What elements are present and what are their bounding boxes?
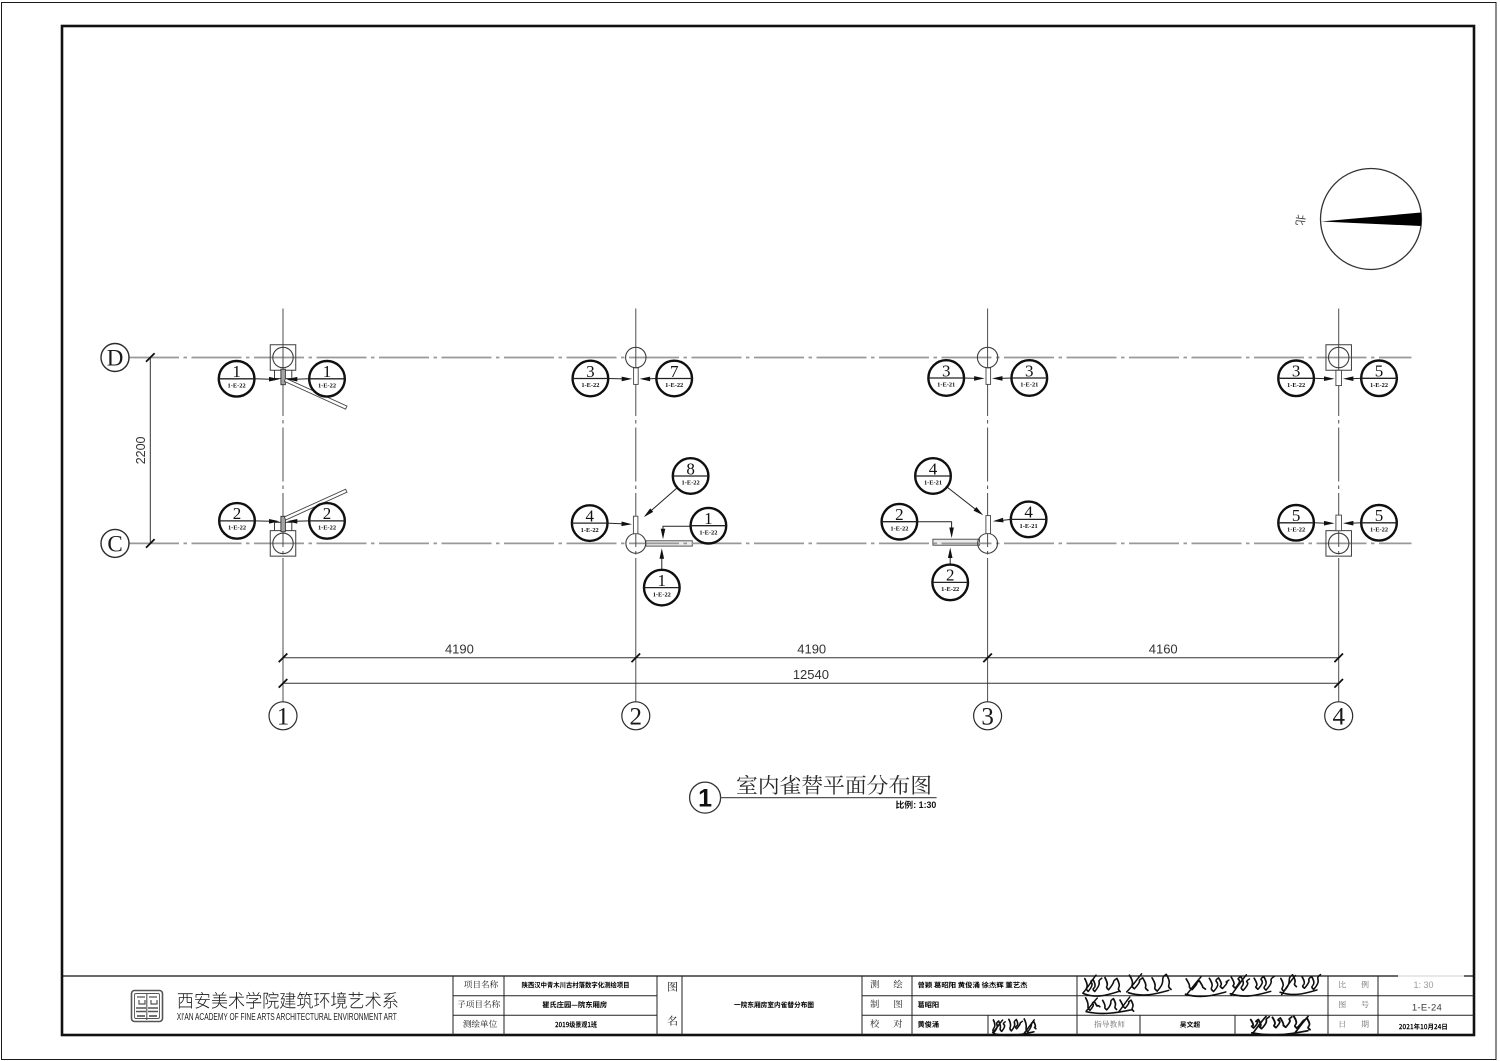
svg-text:1-E-22: 1-E-22 [581, 382, 599, 389]
svg-text:5: 5 [1375, 362, 1384, 381]
svg-text:1: 1 [658, 571, 667, 590]
svg-text:5: 5 [1292, 506, 1301, 525]
svg-text:1-E-22: 1-E-22 [699, 529, 717, 536]
svg-text:1: 1 [277, 703, 290, 730]
svg-text:4: 4 [1024, 503, 1033, 522]
svg-text:C: C [107, 531, 122, 556]
svg-text:1-E-21: 1-E-21 [1020, 382, 1038, 389]
svg-text:1-E-22: 1-E-22 [890, 525, 908, 532]
svg-text:3: 3 [1025, 361, 1034, 380]
svg-text:2: 2 [233, 504, 242, 523]
svg-text:2: 2 [946, 566, 955, 585]
svg-text:1-E-22: 1-E-22 [1287, 382, 1305, 389]
svg-text:12540: 12540 [793, 667, 829, 682]
svg-text:1-E-22: 1-E-22 [665, 382, 683, 389]
svg-text:1: 1 [704, 509, 713, 528]
svg-text:1-E-21: 1-E-21 [1020, 523, 1038, 530]
svg-text:2200: 2200 [134, 436, 148, 464]
svg-text:1-E-24: 1-E-24 [1412, 1002, 1442, 1013]
svg-text:4: 4 [585, 506, 594, 525]
svg-text:7: 7 [670, 362, 679, 381]
svg-text:2: 2 [895, 505, 904, 524]
svg-text:1-E-22: 1-E-22 [1287, 527, 1305, 534]
svg-text:4: 4 [929, 459, 938, 478]
svg-text:1-E-22: 1-E-22 [653, 591, 671, 598]
svg-text:4190: 4190 [445, 641, 474, 656]
svg-text:XI'AN ACADEMY OF FINE ARTS ARC: XI'AN ACADEMY OF FINE ARTS ARCHITECTURAL… [177, 1012, 397, 1023]
svg-text:1: 1 [698, 784, 712, 812]
svg-text:8: 8 [686, 459, 695, 478]
svg-text:1: 30: 1: 30 [1413, 980, 1433, 990]
svg-text:1-E-22: 1-E-22 [581, 527, 599, 534]
svg-text:1-E-21: 1-E-21 [937, 382, 955, 389]
svg-text:4: 4 [1332, 703, 1345, 730]
svg-text:3: 3 [942, 361, 951, 380]
svg-text:1-E-22: 1-E-22 [1370, 527, 1388, 534]
svg-text:3: 3 [586, 362, 595, 381]
svg-text:1-E-22: 1-E-22 [318, 383, 336, 390]
svg-text:2: 2 [630, 703, 643, 730]
svg-text:5: 5 [1375, 506, 1384, 525]
svg-text:2: 2 [323, 504, 332, 523]
svg-text:1-E-21: 1-E-21 [924, 480, 942, 487]
svg-text:1-E-22: 1-E-22 [228, 383, 246, 390]
svg-text:1: 1 [232, 362, 241, 381]
svg-text:3: 3 [1292, 362, 1301, 381]
svg-text:1-E-22: 1-E-22 [941, 586, 959, 593]
svg-text:1-E-22: 1-E-22 [1370, 382, 1388, 389]
svg-text:3: 3 [981, 703, 994, 730]
svg-text:1-E-22: 1-E-22 [318, 525, 336, 532]
svg-text:4160: 4160 [1149, 641, 1178, 656]
svg-text:4190: 4190 [797, 641, 826, 656]
svg-text:1-E-22: 1-E-22 [682, 480, 700, 487]
svg-text:1: 1 [323, 362, 332, 381]
svg-text:1-E-22: 1-E-22 [228, 525, 246, 532]
svg-text:: 1:30: : 1:30 [913, 800, 936, 810]
svg-text:D: D [107, 346, 124, 371]
